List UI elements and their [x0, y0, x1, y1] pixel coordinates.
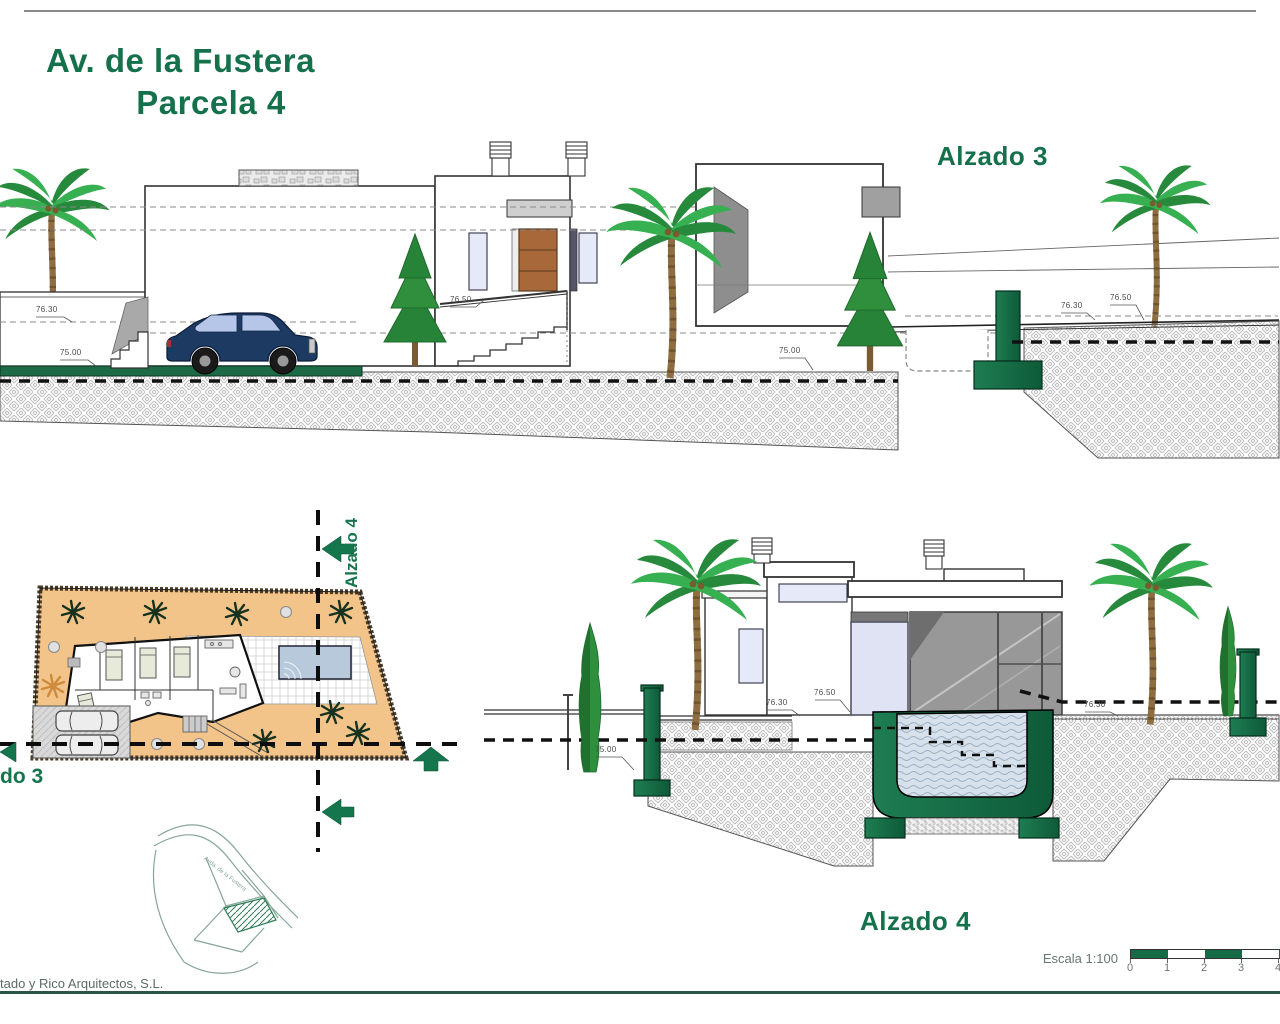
dim-label: 76.30 — [766, 698, 788, 707]
pool-plan — [279, 646, 351, 679]
scale-segment — [1242, 950, 1279, 958]
sidewalk-green-strip — [0, 366, 362, 376]
garage-section-gray — [910, 612, 1062, 715]
palm-section-right-icon — [1089, 543, 1213, 724]
elevation4-drawing — [478, 523, 1280, 905]
dim-label: 75.00 — [60, 348, 82, 357]
architectural-drawing-page: { "title": { "line1": "Av. de la Fustera… — [0, 0, 1280, 1024]
earth-left — [648, 752, 873, 866]
pool-section — [865, 710, 1059, 838]
dim-label: 76.30 — [1061, 301, 1083, 310]
location-minimap — [146, 810, 310, 990]
chimneys — [490, 142, 587, 176]
scale-number: 0 — [1123, 962, 1137, 974]
scale-segment — [1205, 950, 1242, 958]
scale-number: 3 — [1234, 962, 1248, 974]
fence-post — [563, 695, 573, 770]
elevation3-drawing — [0, 128, 1280, 478]
earth-right — [1053, 715, 1279, 861]
scale-text: Escala 1:100 — [1022, 951, 1118, 966]
drawing-title-line2: Parcela 4 — [46, 84, 376, 122]
drawing-title-line1: Av. de la Fustera — [46, 42, 386, 80]
front-door — [512, 229, 557, 291]
section-label-alzado3-cut: do 3 — [0, 765, 43, 789]
dim-label: 76.50 — [450, 295, 472, 304]
dim-label: 75.00 — [779, 346, 801, 355]
dim-label: 76.50 — [1110, 293, 1132, 302]
minimap-roads — [154, 825, 298, 973]
street-ground — [0, 366, 898, 450]
drawing-frame-top-line — [24, 10, 1256, 12]
graphic-scale-bar: 0 1 2 3 4 — [1130, 949, 1280, 975]
planter-soil — [660, 722, 792, 750]
footer-rule-line — [0, 991, 1280, 994]
scale-segment — [1131, 950, 1168, 958]
dim-label: 76.50 — [814, 688, 836, 697]
scale-number: 4 — [1271, 962, 1280, 974]
elevation4-title: Alzado 4 — [860, 906, 971, 937]
dim-label: 76.30 — [36, 305, 58, 314]
house-section — [702, 538, 1062, 715]
cypress-right-icon — [1220, 607, 1236, 717]
scale-number: 2 — [1197, 962, 1211, 974]
section-label-alzado4: Alzado 4 — [342, 502, 362, 588]
scale-segment — [1168, 950, 1205, 958]
scale-number: 1 — [1160, 962, 1174, 974]
dim-label: 76.30 — [1084, 700, 1106, 709]
dim-label: 75.00 — [595, 745, 617, 754]
power-lines — [888, 238, 1279, 272]
scale-bar-frame — [1130, 949, 1280, 959]
driveway — [33, 706, 130, 758]
architects-credit: tado y Rico Arquitectos, S.L. — [0, 976, 163, 991]
palm-right-icon — [1100, 165, 1211, 327]
